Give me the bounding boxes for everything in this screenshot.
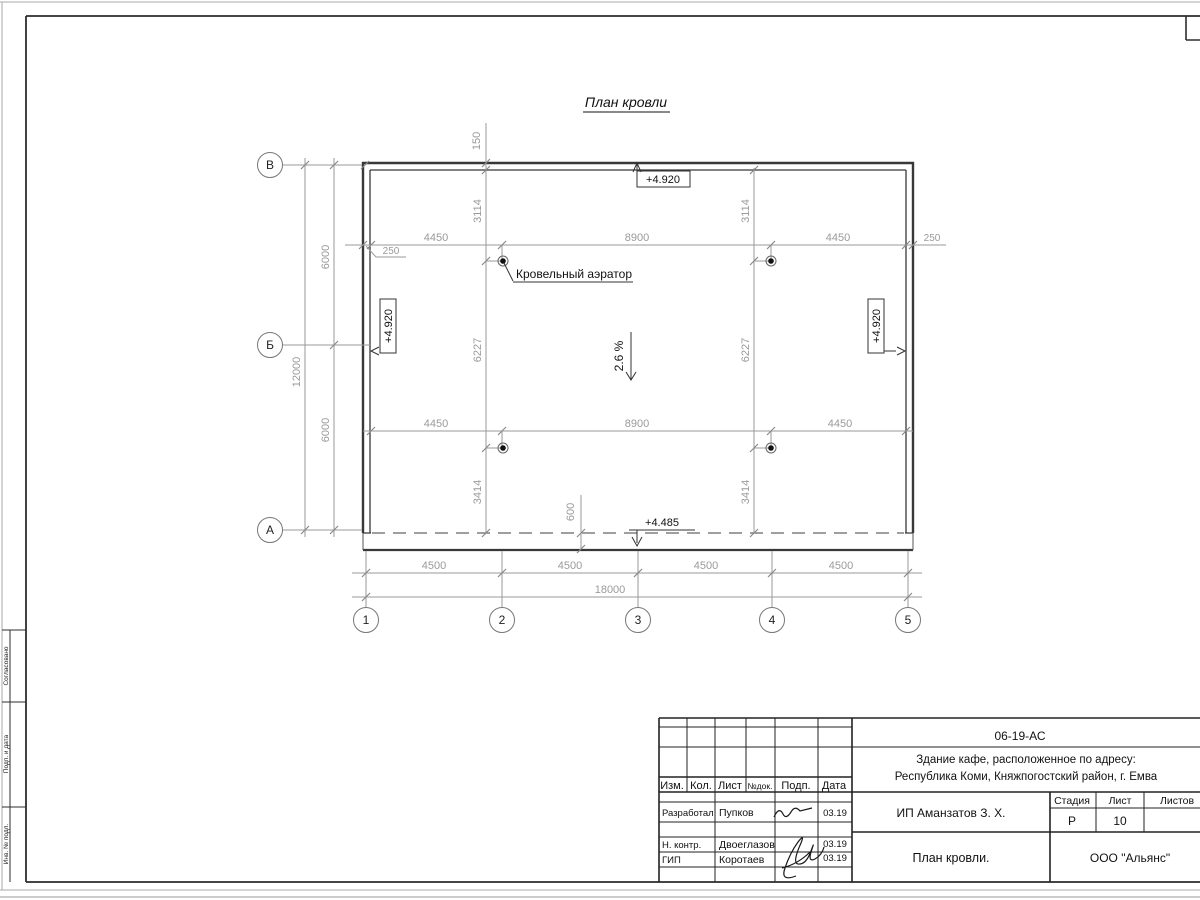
drawing-title: План кровли <box>583 94 670 112</box>
roof-plan-outline <box>362 162 914 550</box>
elev-top-value: +4.920 <box>646 174 680 186</box>
header-podp: Подп. <box>781 780 810 792</box>
dim-chain-right-3: 3414 <box>740 480 752 504</box>
dim-chain-left-1: 3114 <box>472 199 484 223</box>
dim-chain-left-3: 3414 <box>472 480 484 504</box>
sheet-title: План кровли. <box>912 851 989 865</box>
axis-label-2: 2 <box>499 613 506 627</box>
row1-date: 03.19 <box>823 808 847 819</box>
dim-row-1: 6000 <box>320 245 332 269</box>
parapet-inner-line <box>363 170 913 533</box>
left-margin-stamp: Согласовано Подп. и дата Инв. № подл. <box>2 630 26 882</box>
stage-value: Р <box>1068 814 1076 828</box>
row3-name: Коротаев <box>719 854 765 866</box>
row2-date: 03.19 <box>823 839 847 850</box>
axis-circles <box>258 153 921 633</box>
slope-indicator: 2.6 % <box>612 332 636 380</box>
dim-col-3: 4500 <box>694 560 718 572</box>
elev-right-arrow <box>884 303 905 355</box>
dim-col-2: 4500 <box>558 560 582 572</box>
roof-edge-connectors <box>363 533 913 550</box>
doc-number: 06-19-АС <box>994 729 1045 743</box>
header-data: Дата <box>822 780 847 792</box>
dim-total-width: 18000 <box>595 584 626 596</box>
header-ndoc: №док. <box>748 781 773 791</box>
title-block: 06-19-АС Здание кафе, расположенное по а… <box>659 718 1200 882</box>
margin-label-soglasovano: Согласовано <box>3 646 10 685</box>
axis-label-4: 4 <box>769 613 776 627</box>
stage-header: Стадия <box>1054 795 1090 807</box>
drawing-page: Согласовано Подп. и дата Инв. № подл. Пл… <box>0 0 1200 900</box>
client-name: ИП Аманзатов З. Х. <box>896 806 1005 820</box>
page-title: План кровли <box>585 94 667 110</box>
aerator-label: Кровельный аэратор <box>516 267 632 281</box>
dim-row-2: 6000 <box>320 418 332 442</box>
axis-label-b: Б <box>266 338 274 352</box>
row2-role: Н. контр. <box>662 840 701 851</box>
dim-top-3: 4450 <box>826 232 850 244</box>
parapet-outer-line <box>362 162 914 533</box>
dim-mid-2: 8900 <box>625 418 649 430</box>
row1-name: Пупков <box>719 807 754 819</box>
dim-mid-3: 4450 <box>828 418 852 430</box>
dim-offset-right: 250 <box>924 233 941 244</box>
axis-lines <box>283 165 908 607</box>
elev-left-value: +4.920 <box>383 309 395 343</box>
axis-label-3: 3 <box>635 613 642 627</box>
slope-value: 2.6 % <box>612 340 626 371</box>
dim-total-height: 12000 <box>291 357 303 388</box>
margin-label-inv-podl: Инв. № подл. <box>3 824 10 865</box>
dim-top-1: 4450 <box>424 232 448 244</box>
elev-low-value: +4.485 <box>645 517 679 529</box>
dim-col-1: 4500 <box>422 560 446 572</box>
row2-name: Двоеглазов <box>719 839 775 851</box>
row1-role: Разработал <box>662 808 714 819</box>
dim-overhang-600: 600 <box>565 503 577 521</box>
dim-mid-1: 4450 <box>424 418 448 430</box>
slope-arrow <box>626 332 636 380</box>
corner-docnumber-box <box>1186 16 1200 40</box>
grid-axes: В Б А 1 2 3 4 5 <box>258 153 921 633</box>
axis-label-v: В <box>266 158 274 172</box>
elev-low-arrow <box>629 530 695 546</box>
dim-offset-left: 250 <box>383 246 400 257</box>
margin-label-podp-data: Подп. и дата <box>3 734 10 773</box>
dim-chain-right-1: 3114 <box>740 199 752 223</box>
elevation-marks: +4.920 +4.920 +4.920 +4.485 <box>371 163 905 546</box>
dimension-ticks <box>301 159 917 601</box>
dim-parapet-150: 150 <box>471 132 483 150</box>
frame-border <box>26 16 1200 882</box>
header-kol: Кол. <box>690 780 712 792</box>
header-list: Лист <box>718 780 742 792</box>
dim-chain-right-2: 6227 <box>740 338 752 362</box>
sheets-header: Листов <box>1160 795 1195 807</box>
signature-razrabotal <box>774 808 812 817</box>
dim-chain-left-2: 6227 <box>472 338 484 362</box>
object-line1: Здание кафе, расположенное по адресу: <box>916 754 1136 766</box>
company-name: ООО "Альянс" <box>1090 851 1170 865</box>
dim-top-2: 8900 <box>625 232 649 244</box>
axis-label-a: А <box>266 523 274 537</box>
dim-col-4: 4500 <box>829 560 853 572</box>
object-line2: Республика Коми, Княжпогостский район, г… <box>895 771 1158 783</box>
elev-right-value: +4.920 <box>871 309 883 343</box>
sheet-value: 10 <box>1113 814 1127 828</box>
axis-label-5: 5 <box>905 613 912 627</box>
drawing-sheet: Согласовано Подп. и дата Инв. № подл. Пл… <box>0 0 1200 900</box>
axis-label-1: 1 <box>363 613 370 627</box>
sheet-frame <box>26 16 1200 882</box>
elev-left-arrow <box>371 303 380 355</box>
row3-date: 03.19 <box>823 853 847 864</box>
row3-role: ГИП <box>662 855 681 866</box>
header-izm: Изм. <box>660 780 684 792</box>
sheet-header: Лист <box>1109 795 1132 807</box>
